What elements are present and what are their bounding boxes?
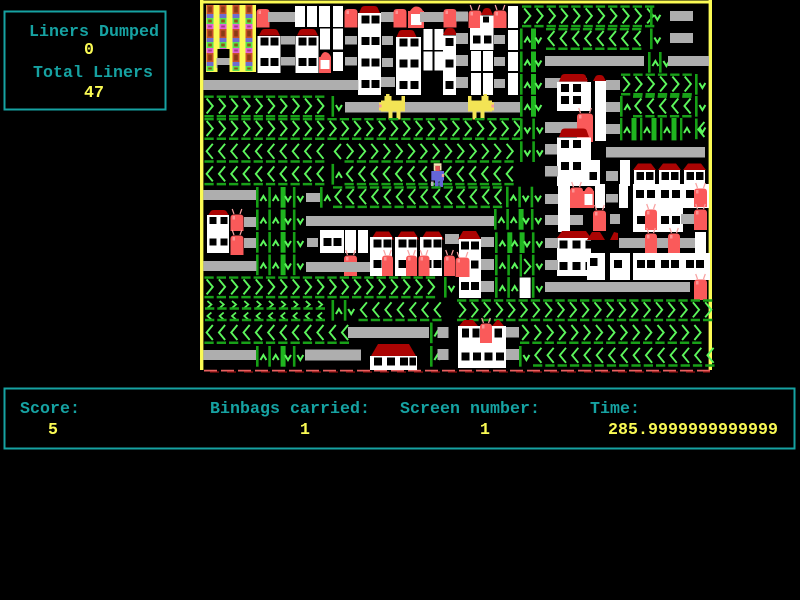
svg-text:1: 1 bbox=[480, 420, 490, 439]
svg-text:0: 0 bbox=[84, 40, 94, 59]
svg-text:Time:: Time: bbox=[590, 399, 640, 418]
svg-text:Total Liners: Total Liners bbox=[33, 63, 153, 82]
svg-text:5: 5 bbox=[48, 420, 58, 439]
svg-text:285.9999999999999: 285.9999999999999 bbox=[608, 420, 778, 439]
svg-text:Screen number:: Screen number: bbox=[400, 399, 540, 418]
svg-text:Binbags carried:: Binbags carried: bbox=[210, 399, 370, 418]
svg-text:47: 47 bbox=[84, 83, 104, 102]
svg-text:Score:: Score: bbox=[20, 399, 80, 418]
svg-text:Liners Dumped: Liners Dumped bbox=[29, 22, 159, 41]
svg-text:1: 1 bbox=[300, 420, 310, 439]
